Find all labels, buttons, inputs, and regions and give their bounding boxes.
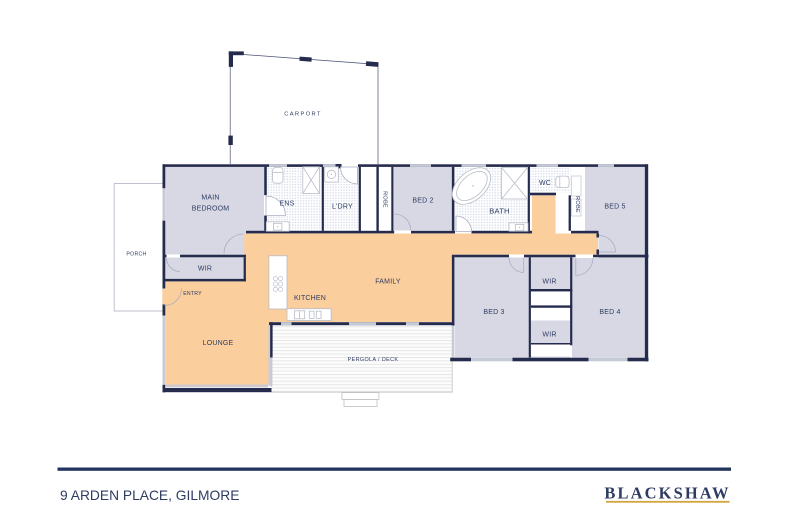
svg-text:BED 4: BED 4 [599,309,620,316]
svg-text:PORCH: PORCH [126,252,146,258]
svg-text:WIR: WIR [198,265,212,272]
svg-text:MAIN: MAIN [201,195,219,202]
svg-text:BATH: BATH [489,207,510,216]
svg-text:ROBE: ROBE [574,196,580,213]
svg-text:BEDROOM: BEDROOM [192,206,230,213]
svg-text:PERGOLA / DECK: PERGOLA / DECK [348,357,399,363]
svg-text:WIR: WIR [542,331,556,338]
svg-text:WC: WC [539,180,551,187]
svg-text:ROBE: ROBE [382,191,388,208]
svg-text:BED 5: BED 5 [604,203,625,210]
svg-text:BLACKSHAW: BLACKSHAW [604,484,730,503]
svg-text:ENTRY: ENTRY [183,291,202,297]
svg-text:WIR: WIR [542,278,556,285]
svg-text:KITCHEN: KITCHEN [294,295,326,302]
svg-text:9 ARDEN PLACE, GILMORE: 9 ARDEN PLACE, GILMORE [60,488,239,503]
svg-text:LOUNGE: LOUNGE [203,340,234,347]
svg-text:BED 2: BED 2 [412,197,433,204]
svg-text:ENS: ENS [280,200,295,207]
svg-text:L'DRY: L'DRY [332,204,353,211]
svg-text:CARPORT: CARPORT [284,112,322,118]
svg-text:BED 3: BED 3 [483,309,504,316]
svg-text:FAMILY: FAMILY [375,279,401,286]
